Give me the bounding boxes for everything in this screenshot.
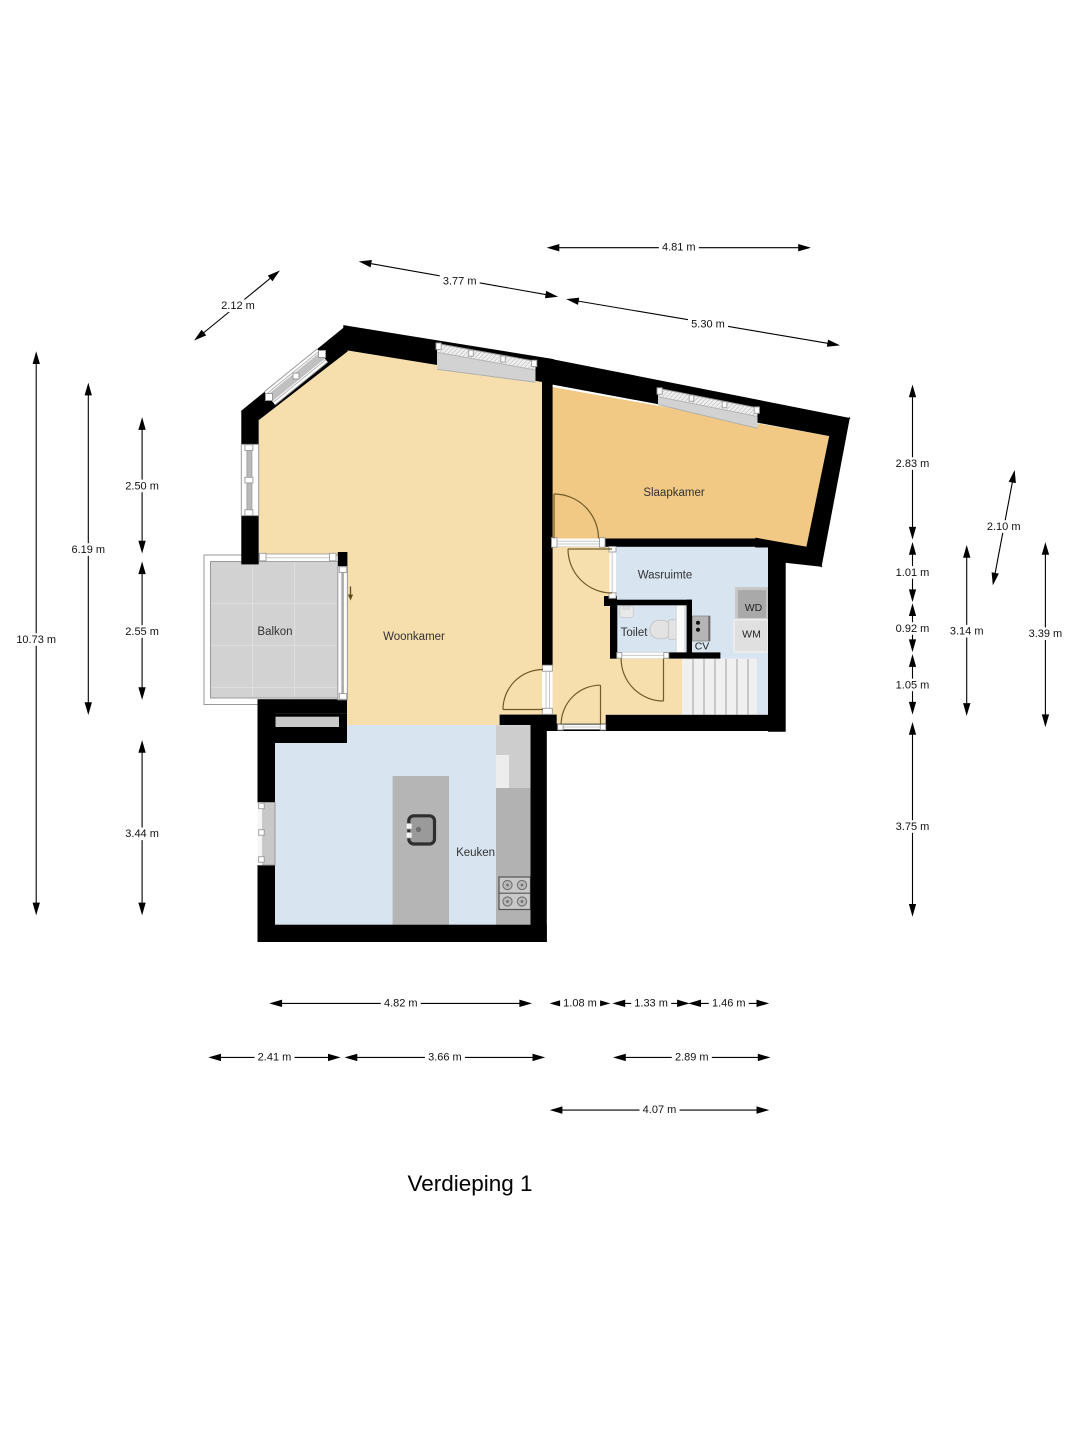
svg-text:2.50 m: 2.50 m (125, 480, 159, 492)
svg-text:6.19 m: 6.19 m (71, 544, 105, 556)
svg-text:2.12 m: 2.12 m (221, 300, 255, 312)
svg-text:Balkon: Balkon (257, 626, 292, 638)
svg-text:2.41 m: 2.41 m (258, 1051, 292, 1063)
svg-text:1.46 m: 1.46 m (712, 997, 746, 1009)
svg-text:2.55 m: 2.55 m (125, 626, 159, 638)
svg-text:Verdieping 1: Verdieping 1 (407, 1171, 532, 1196)
svg-text:1.33 m: 1.33 m (634, 997, 668, 1009)
svg-text:4.07 m: 4.07 m (643, 1104, 677, 1116)
svg-text:3.66 m: 3.66 m (428, 1051, 462, 1063)
svg-text:3.39 m: 3.39 m (1029, 628, 1063, 640)
svg-text:0.92 m: 0.92 m (896, 623, 930, 635)
svg-text:4.81 m: 4.81 m (662, 242, 696, 254)
svg-text:3.14 m: 3.14 m (950, 626, 984, 638)
svg-text:CV: CV (695, 640, 710, 652)
svg-text:1.01 m: 1.01 m (896, 567, 930, 579)
svg-text:3.75 m: 3.75 m (896, 821, 930, 833)
svg-text:4.82 m: 4.82 m (384, 997, 418, 1009)
svg-text:1.05 m: 1.05 m (896, 679, 930, 691)
svg-text:1.08 m: 1.08 m (563, 997, 597, 1009)
svg-text:Slaapkamer: Slaapkamer (643, 487, 705, 499)
svg-text:WD: WD (745, 602, 763, 614)
svg-text:WM: WM (742, 628, 761, 640)
svg-text:Woonkamer: Woonkamer (383, 631, 445, 643)
svg-text:Toilet: Toilet (621, 627, 649, 639)
svg-text:Keuken: Keuken (456, 847, 495, 859)
svg-text:2.83 m: 2.83 m (896, 458, 930, 470)
svg-text:2.10 m: 2.10 m (987, 521, 1021, 533)
svg-text:Wasruimte: Wasruimte (638, 570, 693, 582)
svg-text:2.89 m: 2.89 m (675, 1051, 709, 1063)
svg-text:3.77 m: 3.77 m (443, 275, 477, 287)
svg-text:10.73 m: 10.73 m (16, 634, 56, 646)
svg-text:3.44 m: 3.44 m (125, 828, 159, 840)
svg-text:5.30 m: 5.30 m (691, 318, 725, 330)
